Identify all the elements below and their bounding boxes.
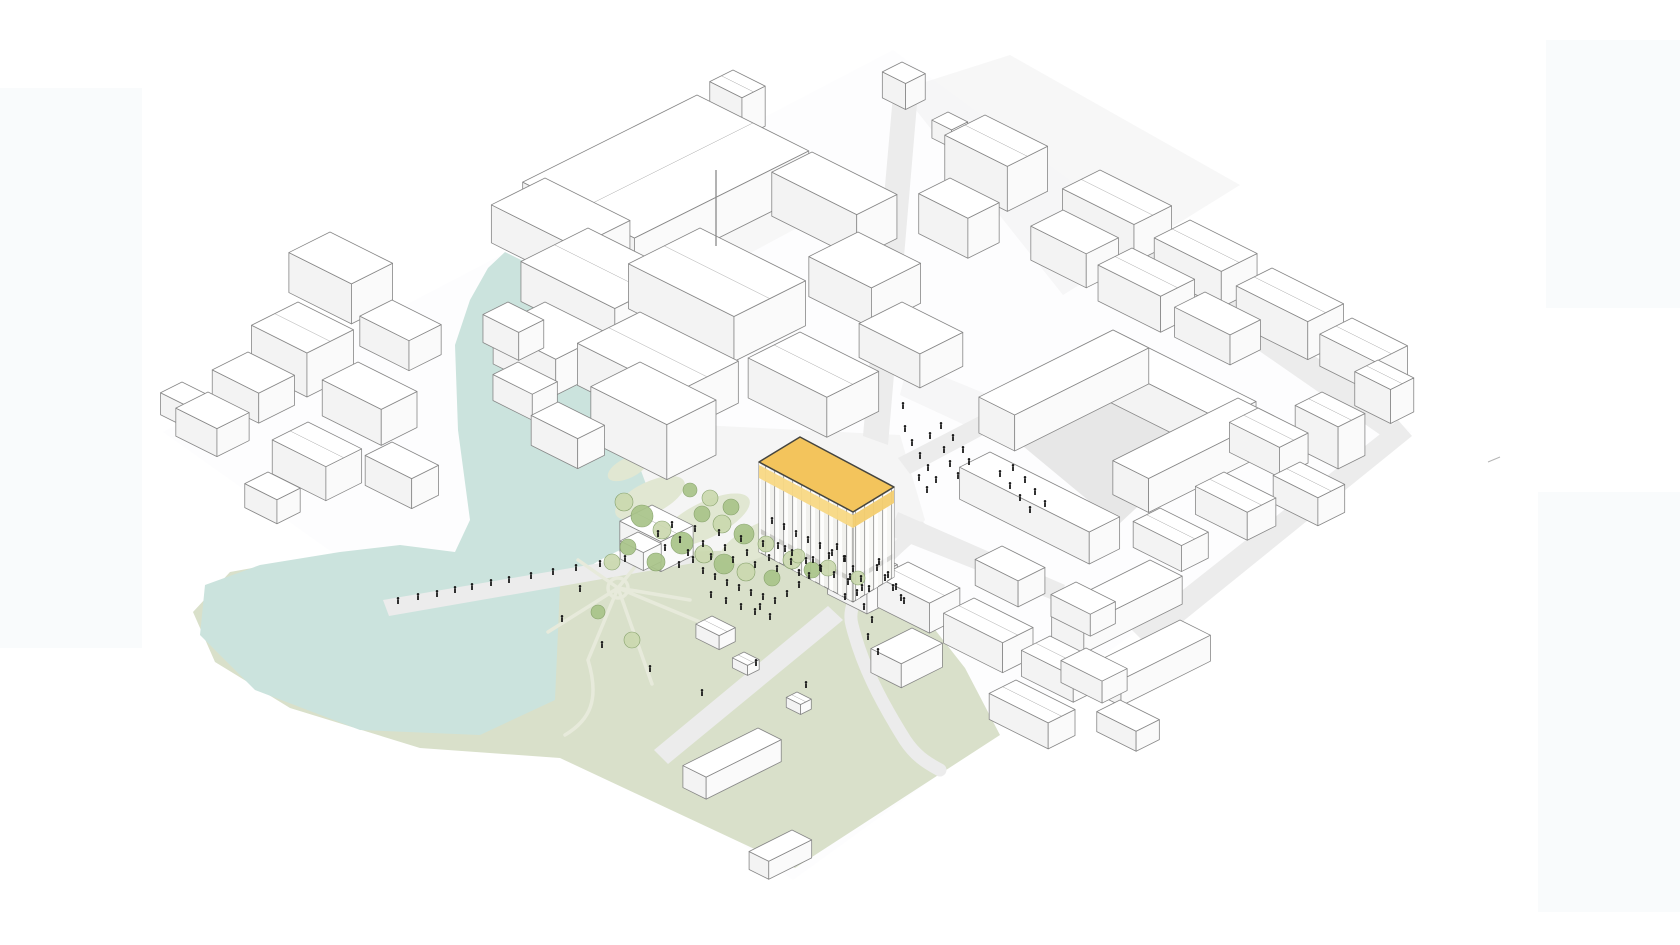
person-head bbox=[783, 523, 786, 526]
person-figure bbox=[783, 523, 786, 530]
person-figure bbox=[397, 597, 400, 604]
tree-icon bbox=[723, 499, 739, 515]
person-head bbox=[863, 603, 866, 606]
person-head bbox=[798, 581, 801, 584]
person-figure bbox=[786, 590, 789, 597]
person-head bbox=[740, 535, 743, 538]
person-figure bbox=[805, 681, 808, 688]
person-figure bbox=[943, 446, 946, 453]
person-head bbox=[940, 422, 943, 425]
person-figure bbox=[664, 544, 667, 551]
person-figure bbox=[754, 608, 757, 615]
person-head bbox=[762, 593, 765, 596]
person-head bbox=[860, 575, 863, 578]
person-head bbox=[649, 665, 652, 668]
person-figure bbox=[624, 555, 627, 562]
person-figure bbox=[805, 557, 808, 564]
person-head bbox=[952, 434, 955, 437]
edge-fade-right-top bbox=[1546, 40, 1680, 308]
person-head bbox=[601, 641, 604, 644]
person-figure bbox=[790, 558, 793, 565]
person-head bbox=[599, 560, 602, 563]
person-figure bbox=[836, 543, 839, 550]
tree-icon bbox=[653, 521, 671, 539]
person-head bbox=[740, 603, 743, 606]
person-figure bbox=[1019, 494, 1022, 501]
person-head bbox=[871, 616, 874, 619]
person-figure bbox=[1029, 506, 1032, 513]
person-head bbox=[949, 460, 952, 463]
person-figure bbox=[918, 474, 921, 481]
person-figure bbox=[819, 564, 822, 571]
person-figure bbox=[714, 573, 717, 580]
person-head bbox=[849, 573, 852, 576]
person-figure bbox=[579, 585, 582, 592]
person-figure bbox=[863, 603, 866, 610]
person-head bbox=[812, 556, 815, 559]
person-figure bbox=[725, 597, 728, 604]
person-figure bbox=[929, 432, 932, 439]
tree-icon bbox=[714, 554, 734, 574]
person-head bbox=[919, 452, 922, 455]
person-figure bbox=[807, 536, 810, 543]
person-figure bbox=[599, 560, 602, 567]
person-head bbox=[847, 578, 850, 581]
person-head bbox=[805, 557, 808, 560]
stray-dash bbox=[1488, 457, 1500, 462]
person-head bbox=[892, 584, 895, 587]
person-head bbox=[1024, 476, 1027, 479]
person-head bbox=[725, 597, 728, 600]
person-head bbox=[774, 597, 777, 600]
person-figure bbox=[808, 572, 811, 579]
tree-icon bbox=[671, 532, 693, 554]
person-head bbox=[508, 576, 511, 579]
person-figure bbox=[732, 556, 735, 563]
person-head bbox=[692, 556, 695, 559]
person-head bbox=[1044, 500, 1047, 503]
tree-icon bbox=[647, 553, 665, 571]
person-head bbox=[843, 555, 846, 558]
person-head bbox=[738, 584, 741, 587]
person-figure bbox=[649, 665, 652, 672]
person-figure bbox=[927, 464, 930, 471]
person-head bbox=[831, 549, 834, 552]
person-head bbox=[895, 583, 898, 586]
person-head bbox=[436, 590, 439, 593]
person-head bbox=[1019, 494, 1022, 497]
person-head bbox=[701, 689, 704, 692]
person-figure bbox=[771, 517, 774, 524]
person-figure bbox=[724, 544, 727, 551]
person-head bbox=[417, 593, 420, 596]
person-figure bbox=[791, 549, 794, 556]
person-head bbox=[1034, 488, 1037, 491]
person-figure bbox=[952, 434, 955, 441]
person-head bbox=[902, 402, 905, 405]
person-figure bbox=[868, 585, 871, 592]
person-head bbox=[714, 573, 717, 576]
person-head bbox=[754, 608, 757, 611]
person-figure bbox=[702, 567, 705, 574]
person-head bbox=[771, 517, 774, 520]
tree-icon bbox=[631, 505, 653, 527]
person-head bbox=[968, 458, 971, 461]
person-head bbox=[903, 597, 906, 600]
person-figure bbox=[784, 545, 787, 552]
person-figure bbox=[746, 549, 749, 556]
person-figure bbox=[657, 530, 660, 537]
person-figure bbox=[754, 561, 757, 568]
edge-fade-left bbox=[0, 88, 142, 648]
person-head bbox=[768, 554, 771, 557]
person-head bbox=[702, 567, 705, 570]
person-figure bbox=[1024, 476, 1027, 483]
person-head bbox=[904, 425, 907, 428]
person-figure bbox=[871, 616, 874, 623]
axonometric-site-plan bbox=[0, 0, 1680, 945]
person-figure bbox=[856, 589, 859, 596]
person-head bbox=[784, 545, 787, 548]
person-head bbox=[671, 521, 674, 524]
person-head bbox=[718, 529, 721, 532]
person-figure bbox=[774, 597, 777, 604]
person-figure bbox=[902, 402, 905, 409]
person-head bbox=[808, 572, 811, 575]
person-figure bbox=[831, 549, 834, 556]
tree-icon bbox=[791, 549, 805, 563]
person-figure bbox=[755, 659, 758, 666]
person-figure bbox=[935, 476, 938, 483]
person-figure bbox=[795, 530, 798, 537]
person-figure bbox=[701, 689, 704, 696]
edge-fade-right-bottom bbox=[1538, 492, 1680, 912]
person-head bbox=[759, 603, 762, 606]
tree-icon bbox=[820, 560, 836, 576]
person-head bbox=[876, 564, 879, 567]
person-figure bbox=[454, 586, 457, 593]
person-head bbox=[926, 486, 929, 489]
person-figure bbox=[768, 554, 771, 561]
person-figure bbox=[911, 439, 914, 446]
person-figure bbox=[903, 597, 906, 604]
person-head bbox=[746, 549, 749, 552]
person-head bbox=[795, 530, 798, 533]
person-figure bbox=[949, 460, 952, 467]
person-figure bbox=[750, 589, 753, 596]
person-head bbox=[777, 542, 780, 545]
tree-icon bbox=[734, 524, 754, 544]
person-figure bbox=[876, 564, 879, 571]
person-head bbox=[490, 579, 493, 582]
person-figure bbox=[884, 574, 887, 581]
person-figure bbox=[844, 593, 847, 600]
person-head bbox=[962, 446, 965, 449]
person-figure bbox=[828, 552, 831, 559]
person-head bbox=[884, 574, 887, 577]
person-head bbox=[861, 584, 864, 587]
person-head bbox=[844, 593, 847, 596]
person-head bbox=[471, 583, 474, 586]
person-head bbox=[579, 585, 582, 588]
person-figure bbox=[843, 555, 846, 562]
person-head bbox=[679, 536, 682, 539]
person-head bbox=[530, 572, 533, 575]
person-figure bbox=[798, 581, 801, 588]
tree-icon bbox=[702, 490, 718, 506]
person-figure bbox=[926, 486, 929, 493]
person-head bbox=[927, 464, 930, 467]
person-figure bbox=[1044, 500, 1047, 507]
person-figure bbox=[962, 446, 965, 453]
person-head bbox=[807, 536, 810, 539]
person-head bbox=[819, 542, 822, 545]
person-head bbox=[868, 585, 871, 588]
person-figure bbox=[860, 575, 863, 582]
person-head bbox=[852, 565, 855, 568]
tree-icon bbox=[804, 562, 820, 578]
person-head bbox=[755, 659, 758, 662]
person-figure bbox=[940, 422, 943, 429]
person-figure bbox=[738, 584, 741, 591]
person-figure bbox=[1012, 464, 1015, 471]
tree-icon bbox=[620, 539, 636, 555]
tree-icon bbox=[764, 570, 780, 586]
person-figure bbox=[759, 603, 762, 610]
person-figure bbox=[762, 540, 765, 547]
person-figure bbox=[1034, 488, 1037, 495]
person-figure bbox=[490, 579, 493, 586]
person-head bbox=[724, 544, 727, 547]
person-figure bbox=[508, 576, 511, 583]
tree-icon bbox=[758, 536, 774, 552]
person-head bbox=[819, 564, 822, 567]
person-head bbox=[776, 565, 779, 568]
person-figure bbox=[957, 472, 960, 479]
person-figure bbox=[417, 593, 420, 600]
tree-icon bbox=[683, 483, 697, 497]
tree-icon bbox=[694, 506, 710, 522]
person-figure bbox=[895, 583, 898, 590]
person-figure bbox=[718, 529, 721, 536]
person-head bbox=[790, 558, 793, 561]
person-head bbox=[397, 597, 400, 600]
person-head bbox=[999, 470, 1002, 473]
person-figure bbox=[436, 590, 439, 597]
person-figure bbox=[530, 572, 533, 579]
person-figure bbox=[1009, 482, 1012, 489]
person-head bbox=[867, 633, 870, 636]
person-figure bbox=[968, 458, 971, 465]
person-figure bbox=[849, 573, 852, 580]
person-figure bbox=[877, 648, 880, 655]
person-figure bbox=[887, 571, 890, 578]
person-head bbox=[678, 561, 681, 564]
person-figure bbox=[861, 584, 864, 591]
person-figure bbox=[740, 603, 743, 610]
person-figure bbox=[819, 542, 822, 549]
person-figure bbox=[601, 641, 604, 648]
person-figure bbox=[561, 615, 564, 622]
person-figure bbox=[999, 470, 1002, 477]
person-figure bbox=[678, 561, 681, 568]
person-figure bbox=[762, 593, 765, 600]
tree-icon bbox=[737, 563, 755, 581]
person-head bbox=[657, 530, 660, 533]
person-figure bbox=[847, 578, 850, 585]
person-figure bbox=[702, 540, 705, 547]
person-head bbox=[887, 571, 890, 574]
person-head bbox=[791, 549, 794, 552]
person-figure bbox=[812, 556, 815, 563]
person-head bbox=[1012, 464, 1015, 467]
tree-icon bbox=[591, 605, 605, 619]
person-head bbox=[1009, 482, 1012, 485]
person-figure bbox=[710, 591, 713, 598]
person-head bbox=[710, 553, 713, 556]
person-head bbox=[561, 615, 564, 618]
person-head bbox=[726, 579, 729, 582]
tree-icon bbox=[851, 571, 865, 585]
person-figure bbox=[900, 594, 903, 601]
person-head bbox=[624, 555, 627, 558]
person-head bbox=[929, 432, 932, 435]
person-figure bbox=[798, 569, 801, 576]
person-head bbox=[918, 474, 921, 477]
person-figure bbox=[892, 584, 895, 591]
person-head bbox=[750, 589, 753, 592]
person-head bbox=[805, 681, 808, 684]
person-figure bbox=[692, 556, 695, 563]
person-head bbox=[1029, 506, 1032, 509]
person-head bbox=[754, 561, 757, 564]
person-figure bbox=[904, 425, 907, 432]
person-figure bbox=[575, 564, 578, 571]
person-figure bbox=[726, 579, 729, 586]
person-figure bbox=[694, 525, 697, 532]
person-head bbox=[900, 594, 903, 597]
person-head bbox=[762, 540, 765, 543]
person-figure bbox=[852, 565, 855, 572]
person-figure bbox=[671, 521, 674, 528]
person-head bbox=[732, 556, 735, 559]
tree-icon bbox=[615, 493, 633, 511]
person-figure bbox=[740, 535, 743, 542]
person-head bbox=[552, 568, 555, 571]
person-figure bbox=[833, 571, 836, 578]
person-head bbox=[833, 571, 836, 574]
person-head bbox=[943, 446, 946, 449]
person-head bbox=[935, 476, 938, 479]
person-head bbox=[694, 525, 697, 528]
person-figure bbox=[867, 633, 870, 640]
person-figure bbox=[919, 452, 922, 459]
person-head bbox=[828, 552, 831, 555]
person-head bbox=[786, 590, 789, 593]
person-head bbox=[454, 586, 457, 589]
person-head bbox=[710, 591, 713, 594]
person-figure bbox=[552, 568, 555, 575]
person-head bbox=[687, 549, 690, 552]
person-figure bbox=[878, 558, 881, 565]
person-head bbox=[575, 564, 578, 567]
tree-icon bbox=[713, 515, 731, 533]
person-head bbox=[878, 558, 881, 561]
person-head bbox=[702, 540, 705, 543]
person-figure bbox=[679, 536, 682, 543]
tree-icon bbox=[604, 554, 620, 570]
person-head bbox=[856, 589, 859, 592]
person-figure bbox=[710, 553, 713, 560]
person-head bbox=[836, 543, 839, 546]
person-head bbox=[664, 544, 667, 547]
person-figure bbox=[471, 583, 474, 590]
person-head bbox=[911, 439, 914, 442]
person-head bbox=[769, 613, 772, 616]
person-head bbox=[877, 648, 880, 651]
person-figure bbox=[687, 549, 690, 556]
person-figure bbox=[776, 565, 779, 572]
person-head bbox=[798, 569, 801, 572]
site-plan-stage bbox=[0, 0, 1680, 945]
tree-icon bbox=[624, 632, 640, 648]
person-head bbox=[957, 472, 960, 475]
person-figure bbox=[769, 613, 772, 620]
person-figure bbox=[777, 542, 780, 549]
